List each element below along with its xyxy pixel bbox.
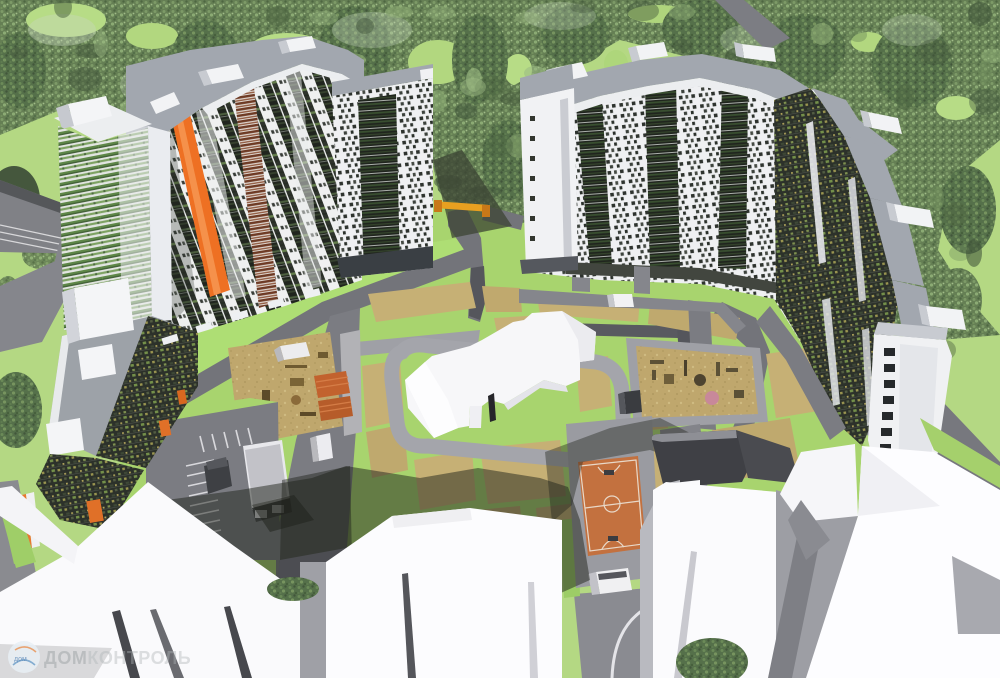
- svg-text:дом: дом: [14, 656, 27, 663]
- svg-text:ДОМКОНТРОЛЬ: ДОМКОНТРОЛЬ: [44, 648, 191, 668]
